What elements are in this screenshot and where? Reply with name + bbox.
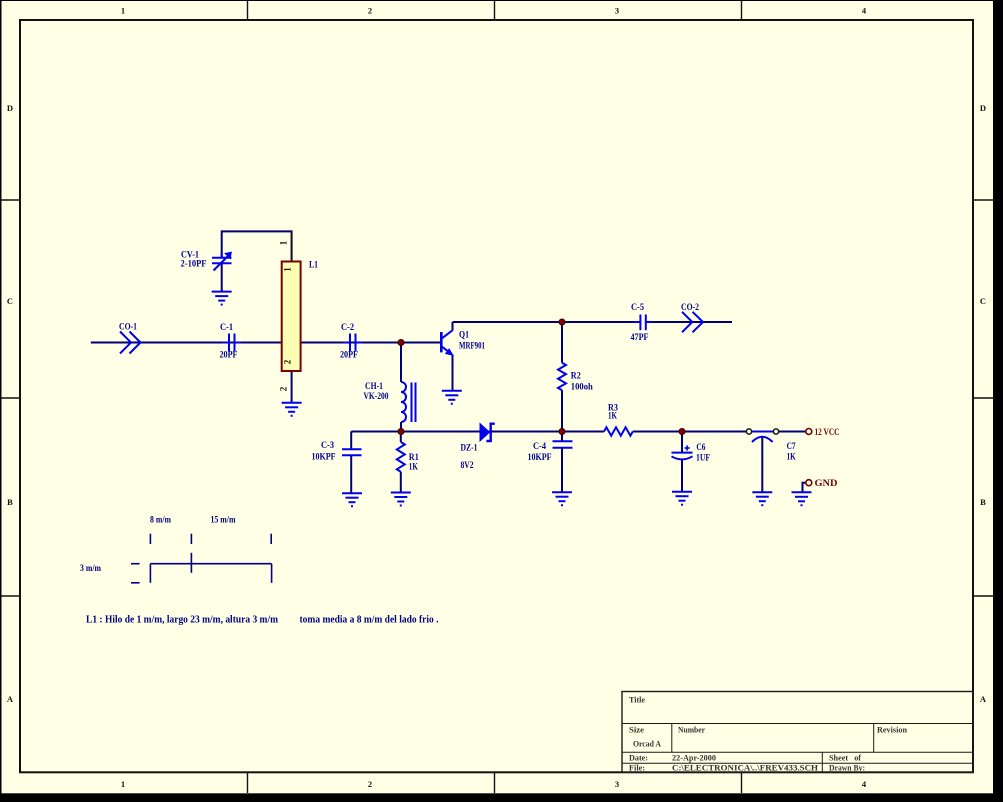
svg-text:22-Apr-2000: 22-Apr-2000 xyxy=(672,754,716,763)
svg-text:C-3: C-3 xyxy=(321,440,334,450)
svg-text:3 m/m: 3 m/m xyxy=(80,563,101,573)
svg-text:Number: Number xyxy=(678,726,705,735)
svg-text:CO-2: CO-2 xyxy=(681,302,699,312)
svg-text:C-2: C-2 xyxy=(341,322,354,332)
svg-text:1: 1 xyxy=(121,779,125,789)
svg-text:C-1: C-1 xyxy=(220,322,233,332)
svg-text:47PF: 47PF xyxy=(631,332,649,342)
svg-text:Date:: Date: xyxy=(629,754,648,763)
svg-text:GND: GND xyxy=(815,478,839,488)
svg-text:10KPF: 10KPF xyxy=(528,452,552,462)
svg-text:2: 2 xyxy=(368,779,372,789)
svg-text:C-4: C-4 xyxy=(533,441,546,451)
svg-text:C: C xyxy=(980,296,986,306)
svg-text:Title: Title xyxy=(629,696,645,705)
svg-text:R1: R1 xyxy=(409,452,419,462)
svg-text:VK-200: VK-200 xyxy=(364,391,389,401)
svg-text:20PF: 20PF xyxy=(340,350,358,360)
svg-text:1K: 1K xyxy=(409,462,418,472)
svg-text:2: 2 xyxy=(279,386,289,391)
svg-text:1UF: 1UF xyxy=(696,452,710,462)
svg-text:CO-1: CO-1 xyxy=(119,322,137,332)
svg-text:8 m/m: 8 m/m xyxy=(150,515,171,525)
svg-text:B: B xyxy=(980,497,986,507)
svg-text:2: 2 xyxy=(283,359,293,364)
svg-text:MRF901: MRF901 xyxy=(459,341,485,351)
svg-text:1K: 1K xyxy=(787,452,796,462)
svg-text:DZ-1: DZ-1 xyxy=(461,442,478,452)
svg-text:D: D xyxy=(7,103,13,113)
svg-text:3: 3 xyxy=(615,6,619,16)
svg-text:Q1: Q1 xyxy=(459,330,469,340)
svg-text:C7: C7 xyxy=(787,441,796,451)
svg-text:A: A xyxy=(980,694,987,704)
svg-text:1: 1 xyxy=(283,267,293,272)
svg-text:2-10PF: 2-10PF xyxy=(181,259,207,269)
svg-text:L1 : Hilo de 1 m/m, largo 23 m: L1 : Hilo de 1 m/m, largo 23 m/m, altura… xyxy=(86,614,278,626)
svg-text:CH-1: CH-1 xyxy=(365,381,383,391)
svg-text:B: B xyxy=(7,497,13,507)
svg-text:10KPF: 10KPF xyxy=(312,451,336,461)
svg-text:Drawn By:: Drawn By: xyxy=(829,764,865,773)
svg-text:Revision: Revision xyxy=(877,726,908,735)
svg-text:Size: Size xyxy=(629,726,644,735)
svg-text:Orcad A: Orcad A xyxy=(633,740,661,749)
svg-text:D: D xyxy=(980,103,986,113)
svg-text:C-5: C-5 xyxy=(631,302,644,312)
svg-text:1: 1 xyxy=(279,240,289,245)
svg-text:R2: R2 xyxy=(571,371,581,381)
svg-text:1K: 1K xyxy=(608,410,617,420)
svg-text:A: A xyxy=(7,694,14,704)
svg-text:C6: C6 xyxy=(696,442,705,452)
svg-text:15 m/m: 15 m/m xyxy=(211,515,236,525)
svg-text:3: 3 xyxy=(615,779,619,789)
svg-text:toma media a 8 m/m del lado fr: toma media a 8 m/m del lado frio . xyxy=(300,614,439,626)
svg-text:8V2: 8V2 xyxy=(461,460,474,470)
svg-text:1: 1 xyxy=(121,6,125,16)
svg-text:12 VCC: 12 VCC xyxy=(815,427,840,437)
svg-text:C:\ELECTRONICA\..\FREV433.SCH: C:\ELECTRONICA\..\FREV433.SCH xyxy=(672,764,819,773)
svg-text:20PF: 20PF xyxy=(220,350,238,360)
svg-text:2: 2 xyxy=(368,6,372,16)
svg-text:Sheet of: Sheet of xyxy=(829,754,861,763)
svg-text:100oh: 100oh xyxy=(571,381,593,391)
svg-text:File:: File: xyxy=(629,764,645,773)
svg-text:L1: L1 xyxy=(309,260,318,270)
svg-text:C: C xyxy=(7,296,13,306)
